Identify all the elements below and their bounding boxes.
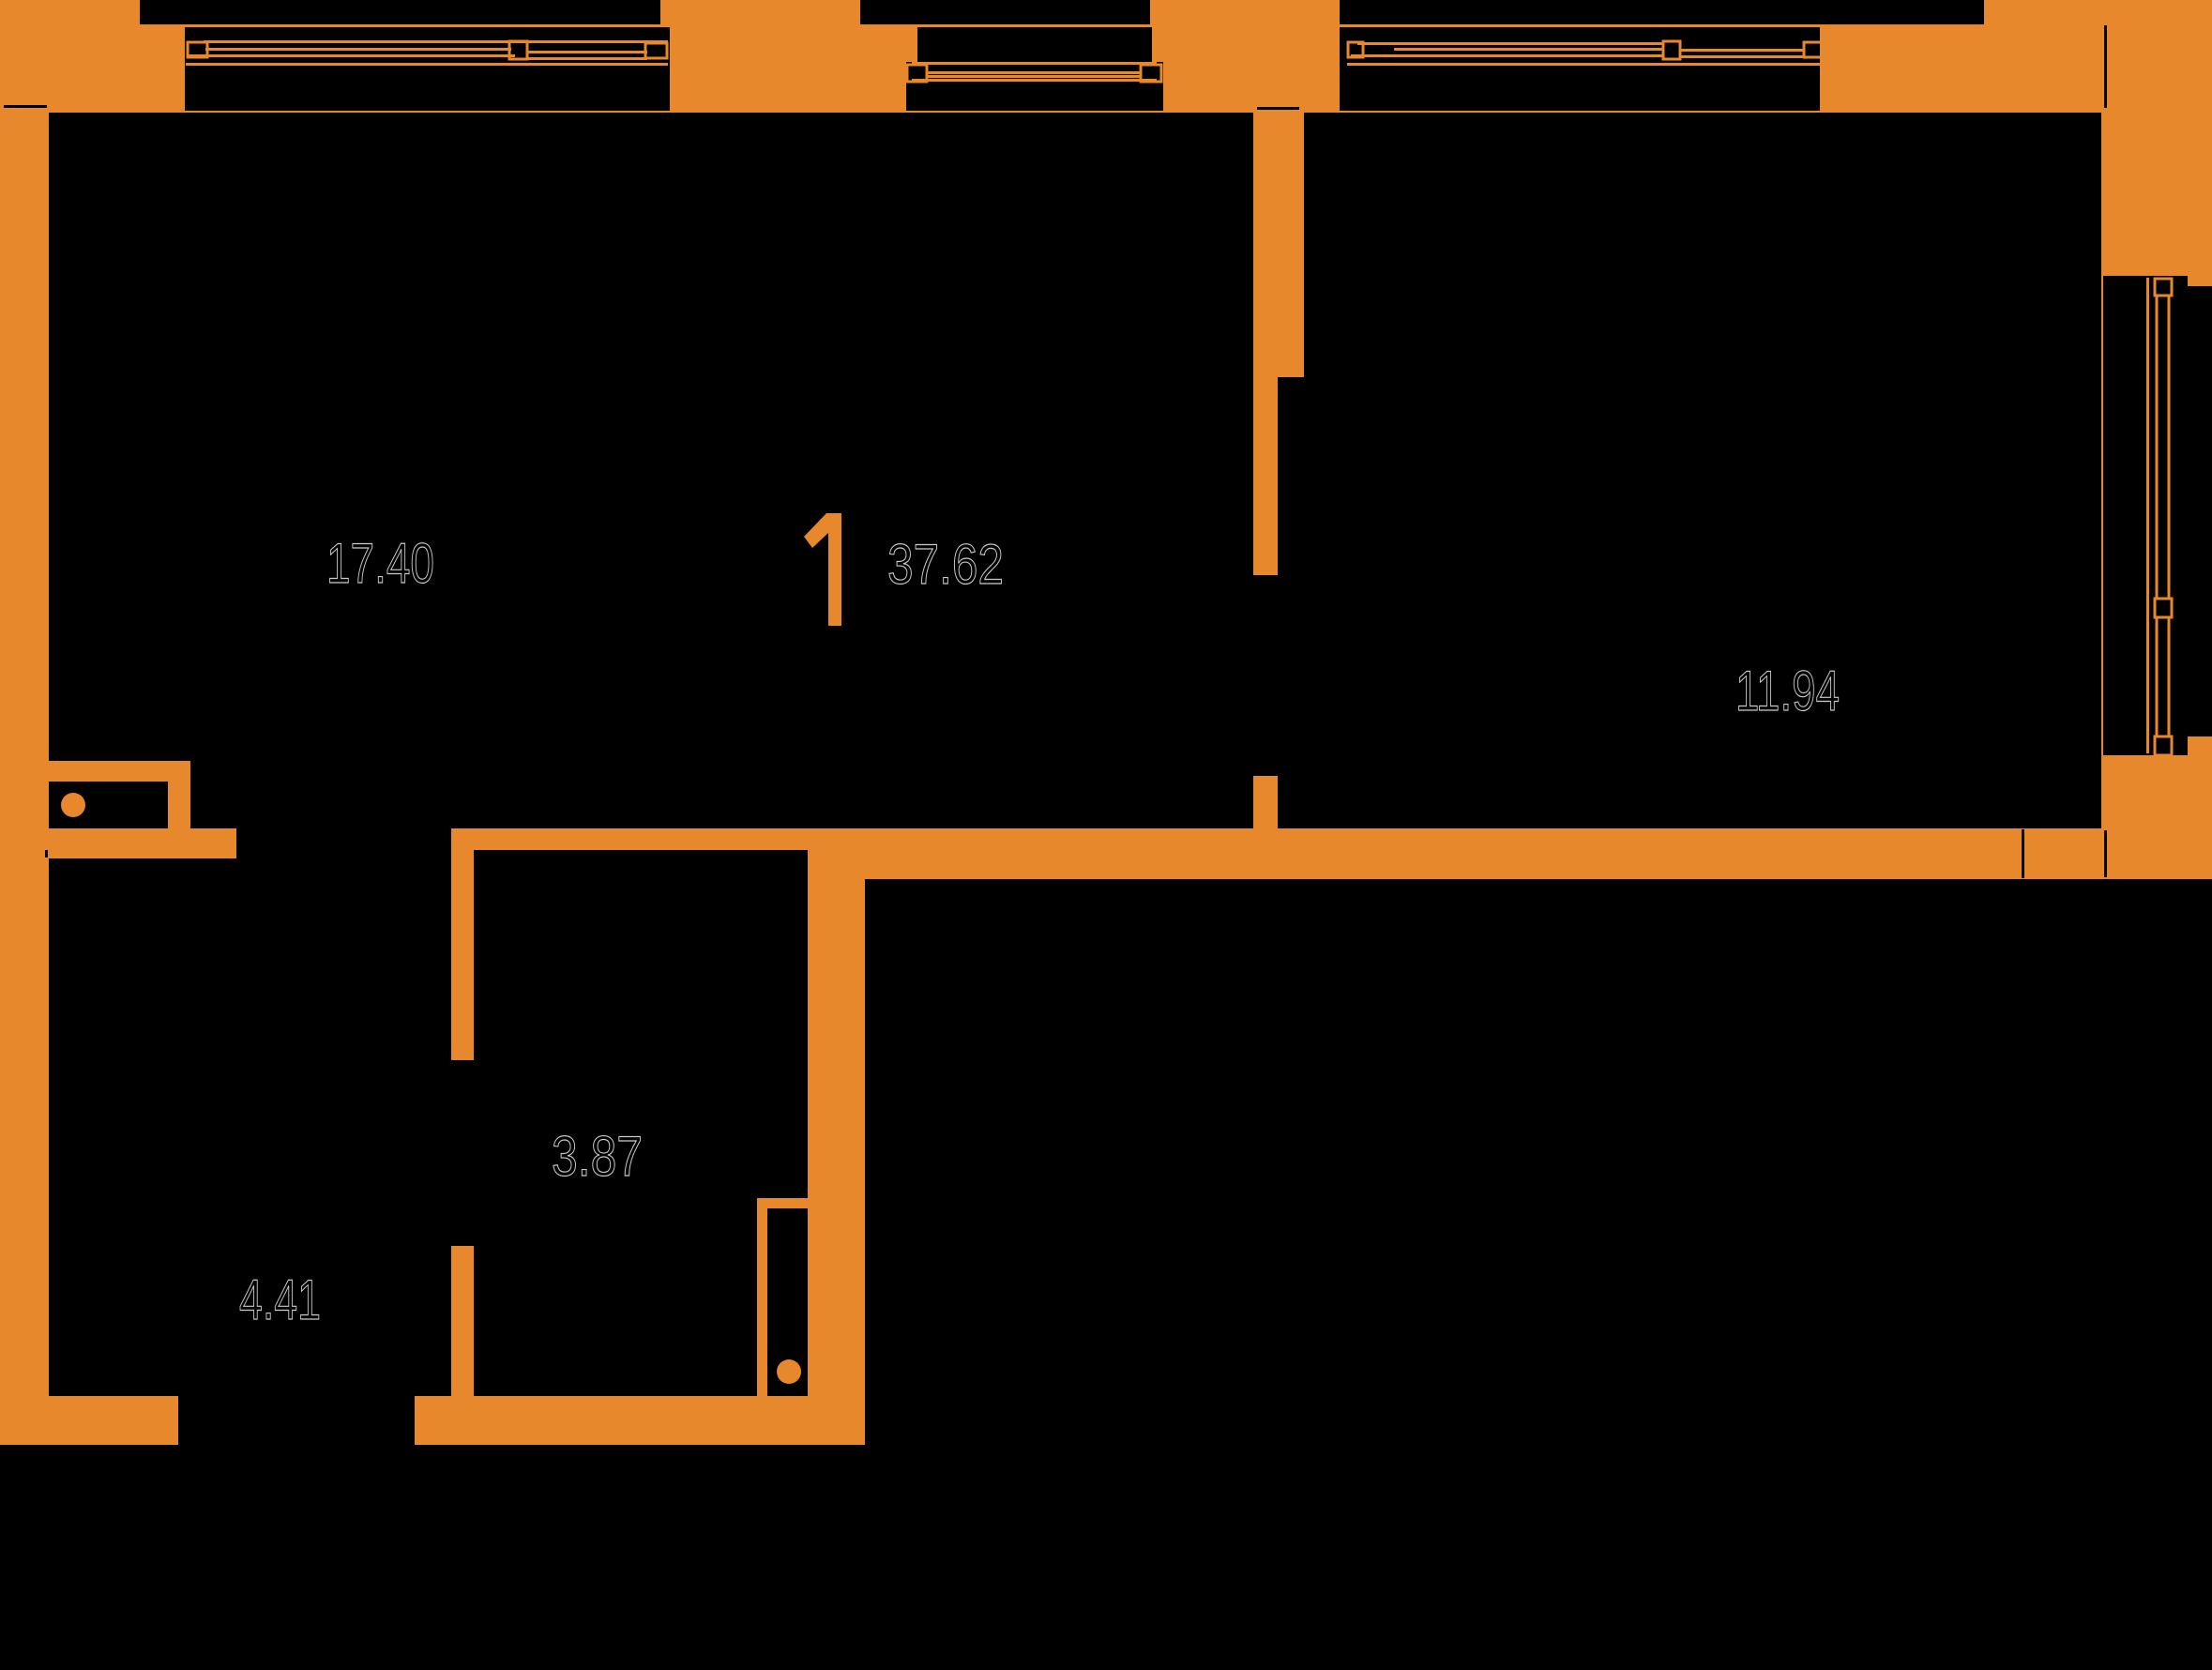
svg-text:11.94: 11.94 (1735, 660, 1840, 722)
svg-text:17.40: 17.40 (326, 532, 434, 595)
svg-text:37.62: 37.62 (887, 533, 1004, 596)
svg-text:4.41: 4.41 (239, 1268, 321, 1331)
svg-text:3.87: 3.87 (552, 1125, 643, 1188)
